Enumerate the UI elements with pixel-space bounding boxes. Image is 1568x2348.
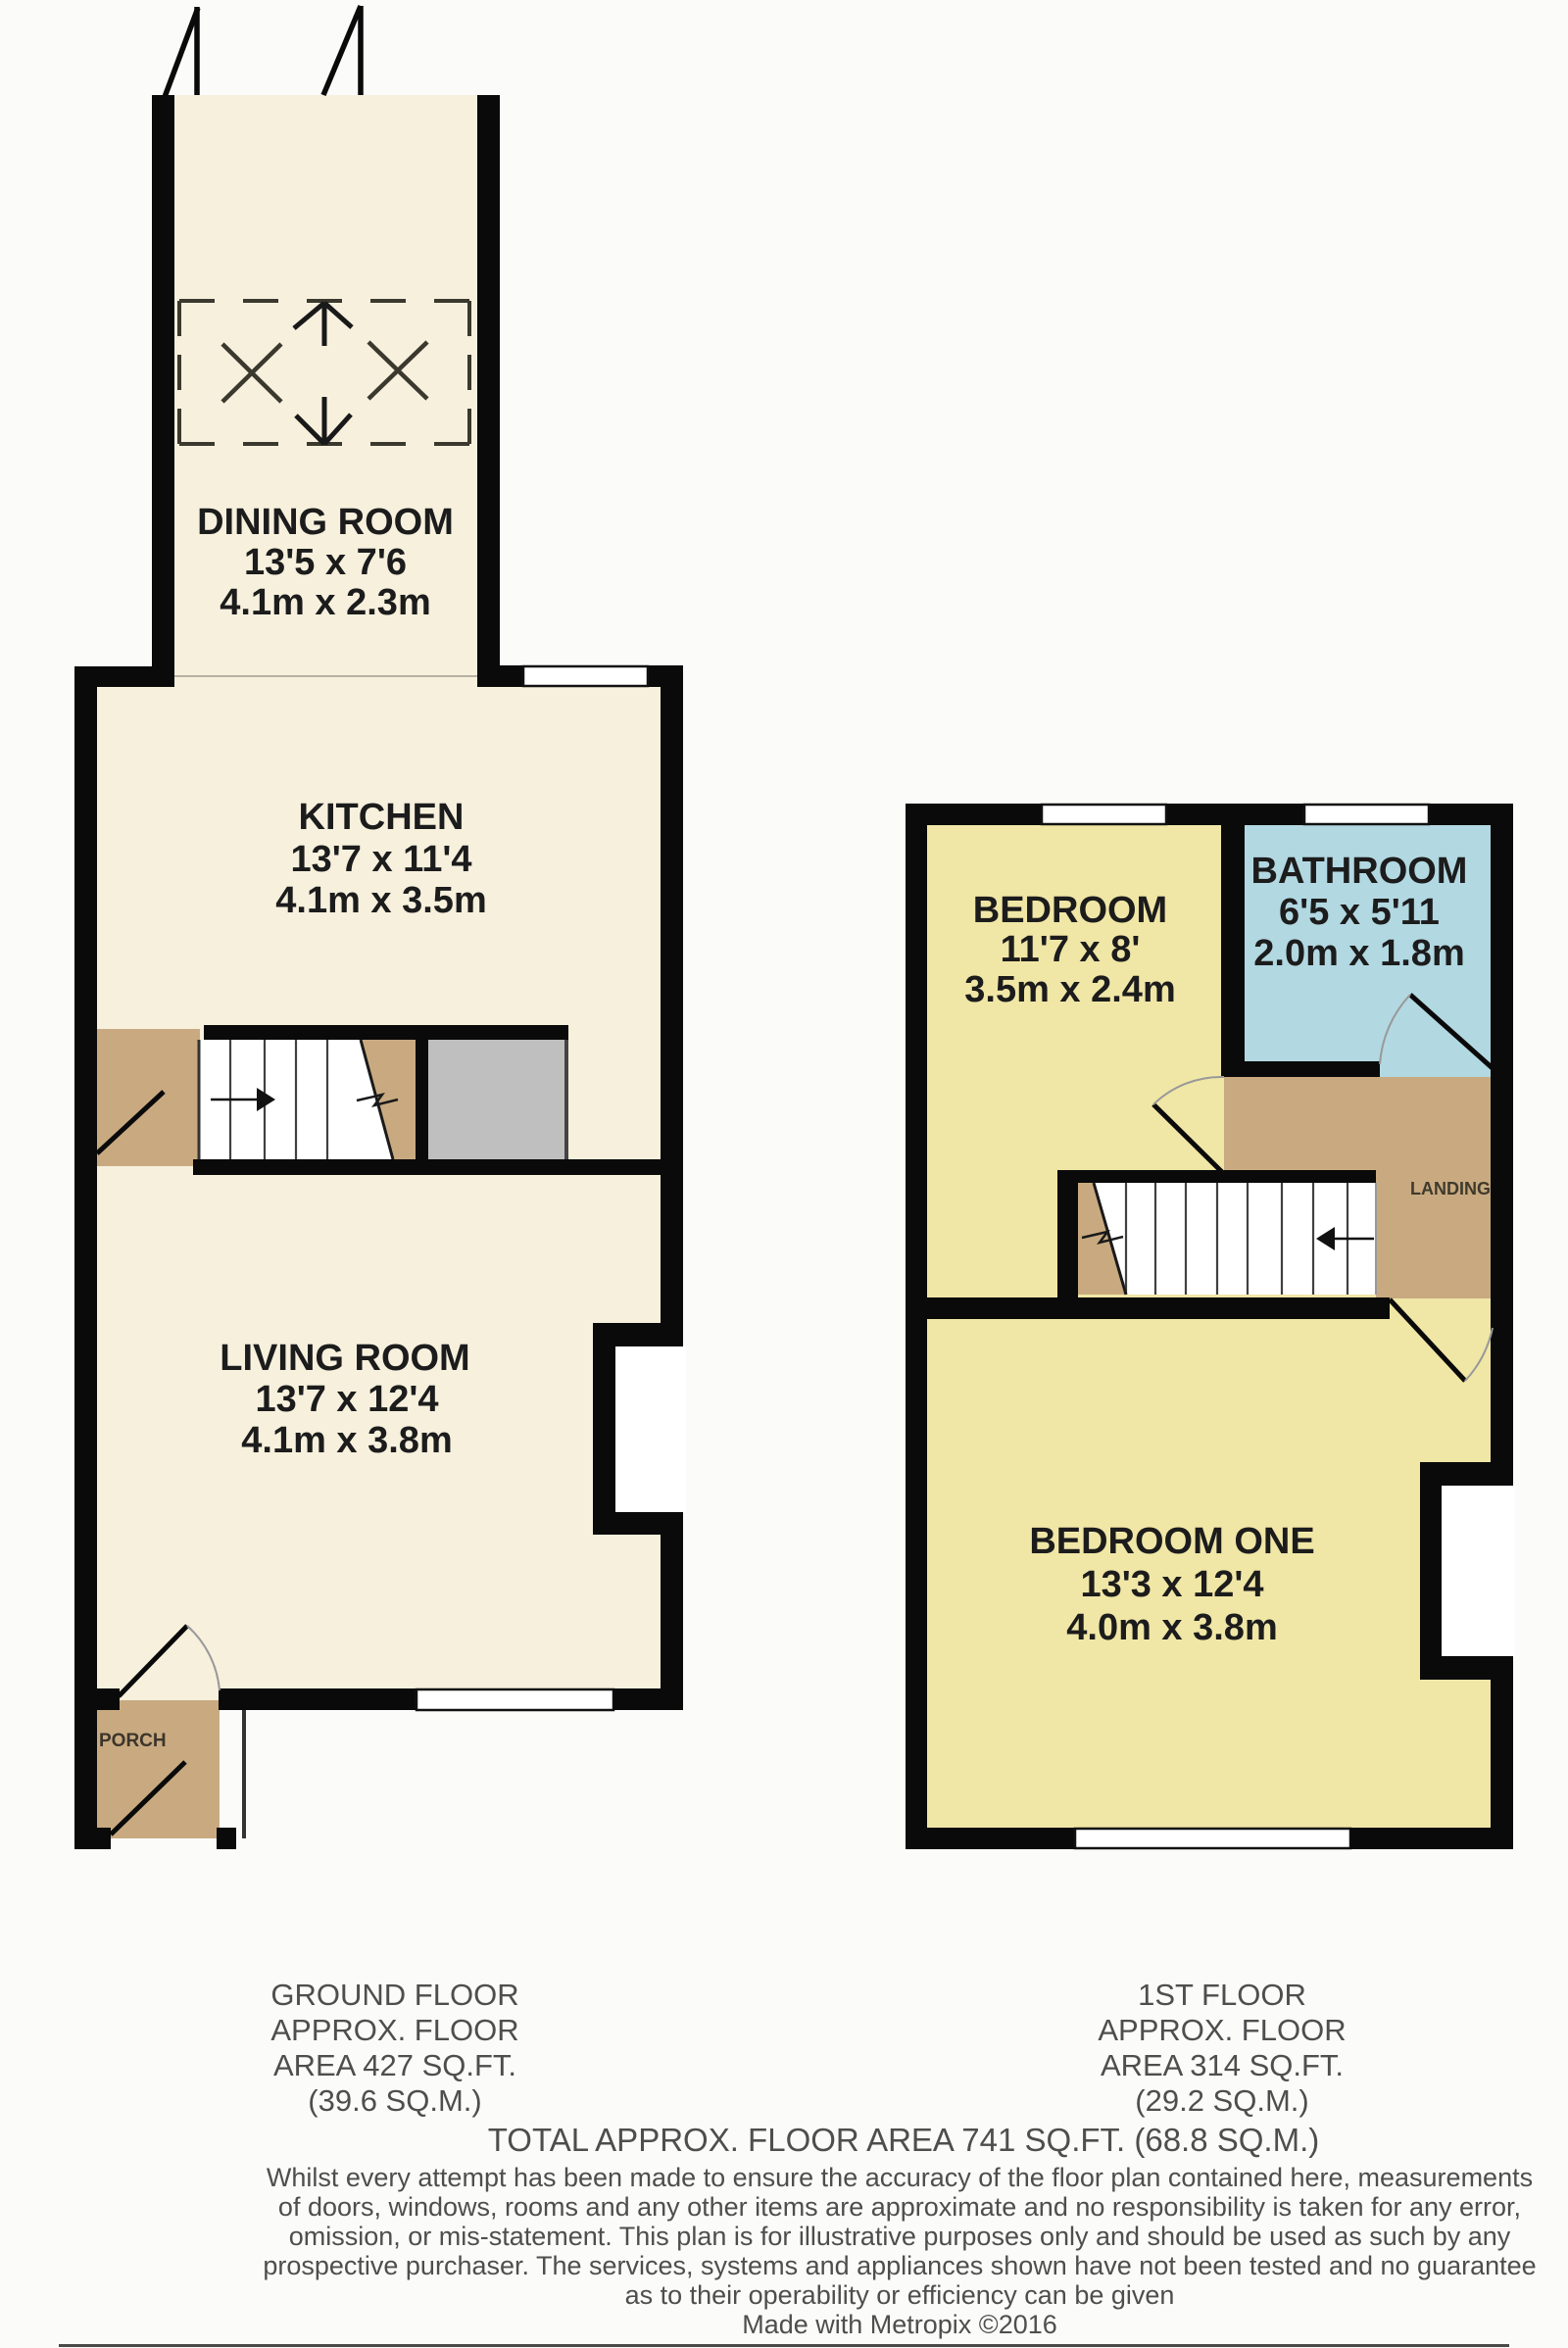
svg-text:BEDROOM: BEDROOM: [973, 890, 1167, 931]
svg-text:13'7 x 12'4: 13'7 x 12'4: [255, 1379, 438, 1420]
svg-text:APPROX. FLOOR: APPROX. FLOOR: [1098, 2013, 1346, 2047]
svg-text:LIVING ROOM: LIVING ROOM: [220, 1338, 469, 1379]
svg-text:4.1m x 3.5m: 4.1m x 3.5m: [275, 880, 486, 921]
svg-text:3.5m x 2.4m: 3.5m x 2.4m: [964, 969, 1175, 1010]
svg-text:BEDROOM ONE: BEDROOM ONE: [1029, 1521, 1314, 1562]
svg-text:APPROX. FLOOR: APPROX. FLOOR: [270, 2013, 518, 2047]
svg-text:13'5 x 7'6: 13'5 x 7'6: [244, 542, 407, 583]
svg-text:4.1m x 2.3m: 4.1m x 2.3m: [220, 582, 430, 623]
svg-text:1ST FLOOR: 1ST FLOOR: [1138, 1978, 1306, 2012]
svg-text:(29.2 SQ.M.): (29.2 SQ.M.): [1135, 2083, 1308, 2118]
svg-text:as to their operability or eff: as to their operability or efficiency ca…: [625, 2280, 1175, 2310]
svg-text:11'7 x 8': 11'7 x 8': [1001, 929, 1141, 970]
svg-text:AREA 427 SQ.FT.: AREA 427 SQ.FT.: [273, 2048, 516, 2082]
svg-text:AREA 314 SQ.FT.: AREA 314 SQ.FT.: [1101, 2048, 1344, 2082]
svg-text:4.0m x 3.8m: 4.0m x 3.8m: [1066, 1607, 1277, 1648]
svg-text:DINING ROOM: DINING ROOM: [197, 502, 454, 543]
svg-text:of doors, windows, rooms and a: of doors, windows, rooms and any other i…: [278, 2192, 1521, 2222]
svg-text:KITCHEN: KITCHEN: [299, 797, 465, 838]
svg-text:Made with Metropix ©2016: Made with Metropix ©2016: [742, 2310, 1057, 2339]
svg-text:LANDING: LANDING: [1410, 1179, 1491, 1198]
svg-text:GROUND FLOOR: GROUND FLOOR: [270, 1978, 518, 2012]
svg-text:TOTAL APPROX. FLOOR AREA 741 S: TOTAL APPROX. FLOOR AREA 741 SQ.FT. (68.…: [488, 2122, 1320, 2158]
svg-text:6'5 x 5'11: 6'5 x 5'11: [1279, 892, 1440, 933]
svg-text:13'3 x 12'4: 13'3 x 12'4: [1080, 1564, 1263, 1605]
svg-text:2.0m x 1.8m: 2.0m x 1.8m: [1253, 933, 1464, 974]
svg-text:omission, or mis-statement. Th: omission, or mis-statement. This plan is…: [289, 2222, 1511, 2251]
svg-text:prospective purchaser. The ser: prospective purchaser. The services, sys…: [263, 2251, 1536, 2280]
svg-text:13'7 x 11'4: 13'7 x 11'4: [290, 839, 471, 880]
svg-text:(39.6 SQ.M.): (39.6 SQ.M.): [308, 2083, 481, 2118]
svg-text:Whilst every attempt has been: Whilst every attempt has been made to en…: [267, 2163, 1533, 2192]
svg-text:4.1m x 3.8m: 4.1m x 3.8m: [241, 1420, 452, 1461]
svg-text:PORCH: PORCH: [99, 1731, 167, 1751]
svg-text:BATHROOM: BATHROOM: [1251, 851, 1468, 892]
